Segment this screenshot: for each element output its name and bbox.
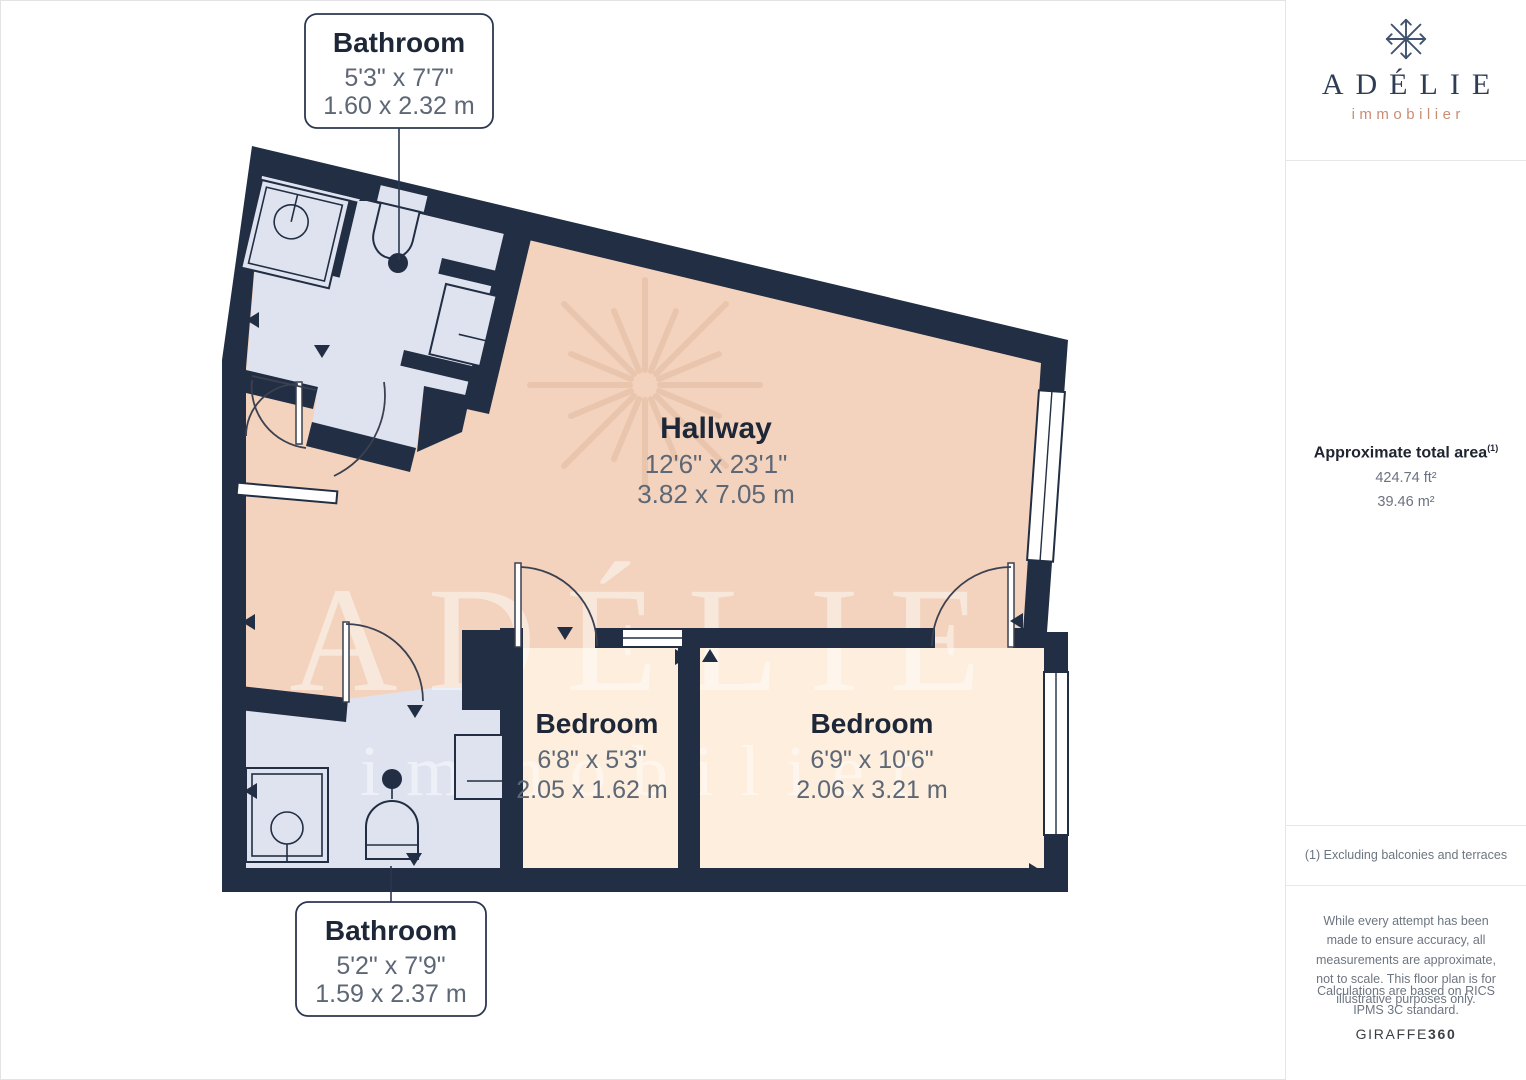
svg-text:12'6" x 23'1": 12'6" x 23'1"	[645, 449, 788, 479]
giraffe360-brand-name: GIRAFFE	[1356, 1026, 1428, 1042]
room-label-hallway: Hallway 12'6" x 23'1" 3.82 x 7.05 m	[637, 412, 795, 509]
logo-snowflake-icon	[1383, 16, 1429, 62]
total-area-metric: 39.46 m²	[1286, 494, 1526, 510]
total-area-imperial: 424.74 ft²	[1286, 470, 1526, 486]
svg-text:1.60 x 2.32 m: 1.60 x 2.32 m	[323, 92, 474, 120]
brand-logo: ADÉLIE immobilier	[1286, 16, 1526, 123]
room-label-bedroom-left: Bedroom 6'8" x 5'3" 2.05 x 1.62 m	[516, 708, 667, 804]
total-area-block: Approximate total area(1) 424.74 ft² 39.…	[1286, 443, 1526, 510]
sidebar-divider	[1286, 160, 1526, 161]
svg-text:Bathroom: Bathroom	[333, 27, 465, 58]
logo-tagline: immobilier	[1286, 106, 1526, 123]
sidebar-divider	[1286, 885, 1526, 886]
svg-text:Bedroom: Bedroom	[811, 708, 934, 739]
svg-text:Bedroom: Bedroom	[536, 708, 659, 739]
sink-bottom	[455, 735, 503, 799]
room-label-bedroom-right: Bedroom 6'9" x 10'6" 2.06 x 3.21 m	[796, 708, 947, 804]
floor-plan: ADÉLIE immobilier	[0, 0, 1285, 1080]
total-area-title-text: Approximate total area	[1314, 444, 1487, 461]
floorplan-page: ADÉLIE immobilier	[0, 0, 1526, 1080]
total-area-superscript: (1)	[1487, 443, 1498, 453]
floor-plan-svg: ADÉLIE immobilier	[0, 0, 1285, 1080]
svg-text:1.59 x 2.37 m: 1.59 x 2.37 m	[315, 980, 466, 1008]
svg-text:5'3" x 7'7": 5'3" x 7'7"	[344, 64, 453, 92]
area-footnote: (1) Excluding balconies and terraces	[1286, 826, 1526, 884]
shower-top	[241, 180, 349, 288]
giraffe360-brand: GIRAFFE360	[1286, 1026, 1526, 1042]
shower-bottom	[246, 768, 328, 862]
info-sidebar: ADÉLIE immobilier Approximate total area…	[1285, 0, 1526, 1080]
svg-text:2.05 x 1.62 m: 2.05 x 1.62 m	[516, 776, 667, 804]
logo-name: ADÉLIE	[1286, 68, 1526, 102]
toilet-bottom	[366, 801, 418, 859]
window-internal	[622, 629, 683, 647]
svg-text:6'8" x 5'3": 6'8" x 5'3"	[537, 746, 646, 774]
svg-text:Hallway: Hallway	[660, 412, 772, 445]
disclaimer-standard: Calculations are based on RICS IPMS 3C s…	[1286, 982, 1526, 1021]
giraffe360-brand-suffix: 360	[1428, 1026, 1456, 1042]
window-bedroom-right	[1044, 672, 1068, 835]
svg-text:6'9" x 10'6": 6'9" x 10'6"	[810, 746, 933, 774]
svg-text:Bathroom: Bathroom	[325, 915, 457, 946]
svg-text:3.82 x 7.05 m: 3.82 x 7.05 m	[637, 479, 795, 509]
toilet-top-drain	[388, 253, 408, 273]
svg-text:2.06 x 3.21 m: 2.06 x 3.21 m	[796, 776, 947, 804]
total-area-title: Approximate total area(1)	[1286, 443, 1526, 462]
svg-text:5'2" x 7'9": 5'2" x 7'9"	[336, 952, 445, 980]
